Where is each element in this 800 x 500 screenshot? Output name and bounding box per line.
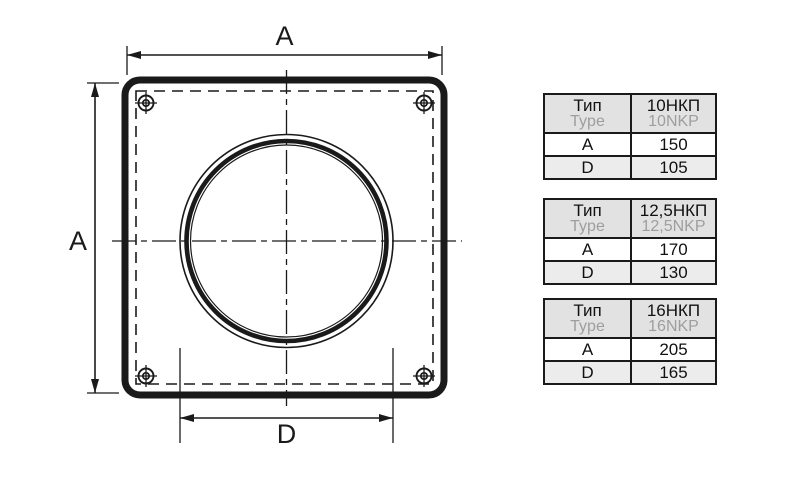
header-param-ru: Тип — [573, 202, 601, 219]
value-cell: 105 — [632, 157, 715, 178]
param-cell: A — [545, 134, 632, 155]
dimension-height-A — [87, 83, 119, 393]
header-type-en: 10NKP — [648, 114, 699, 130]
table-header-param: Тип Type — [545, 300, 632, 337]
table-row: D 105 — [545, 155, 715, 178]
param-cell: D — [545, 362, 632, 383]
dim-width-label: A — [275, 21, 293, 51]
header-param-en: Type — [570, 219, 605, 235]
value-cell: 205 — [632, 339, 715, 360]
value-cell: 130 — [632, 262, 715, 283]
dim-height-label: A — [69, 226, 87, 256]
param-cell: D — [545, 157, 632, 178]
table-header-param: Тип Type — [545, 200, 632, 237]
page: A A D Тип Type 10НКП 1 — [0, 0, 800, 500]
table-row: D 130 — [545, 260, 715, 283]
spec-table-12-5nkp: Тип Type 12,5НКП 12,5NKP A 170 D 130 — [543, 198, 717, 285]
table-header-param: Тип Type — [545, 95, 632, 132]
dim-diameter-label: D — [277, 419, 297, 449]
value-cell: 165 — [632, 362, 715, 383]
table-row: A 205 — [545, 337, 715, 360]
table-header-type: 16НКП 16NKP — [632, 300, 715, 337]
table-header-type: 10НКП 10NKP — [632, 95, 715, 132]
header-type-ru: 12,5НКП — [640, 202, 708, 219]
table-row: A 150 — [545, 132, 715, 155]
header-type-ru: 10НКП — [647, 97, 700, 114]
header-type-ru: 16НКП — [647, 302, 700, 319]
spec-table-10nkp: Тип Type 10НКП 10NKP A 150 D 105 — [543, 93, 717, 180]
spec-table-16nkp: Тип Type 16НКП 16NKP A 205 D 165 — [543, 298, 717, 385]
value-cell: 150 — [632, 134, 715, 155]
table-header-type: 12,5НКП 12,5NKP — [632, 200, 715, 237]
header-param-en: Type — [570, 319, 605, 335]
header-param-ru: Тип — [573, 302, 601, 319]
param-cell: A — [545, 339, 632, 360]
table-header: Тип Type 10НКП 10NKP — [545, 95, 715, 132]
param-cell: D — [545, 262, 632, 283]
flange-technical-drawing: A A D — [0, 0, 520, 500]
table-header: Тип Type 16НКП 16NKP — [545, 300, 715, 337]
value-cell: 170 — [632, 239, 715, 260]
header-param-en: Type — [570, 114, 605, 130]
param-cell: A — [545, 239, 632, 260]
header-param-ru: Тип — [573, 97, 601, 114]
header-type-en: 16NKP — [648, 319, 699, 335]
table-row: A 170 — [545, 237, 715, 260]
table-header: Тип Type 12,5НКП 12,5NKP — [545, 200, 715, 237]
header-type-en: 12,5NKP — [641, 219, 705, 235]
table-row: D 165 — [545, 360, 715, 383]
